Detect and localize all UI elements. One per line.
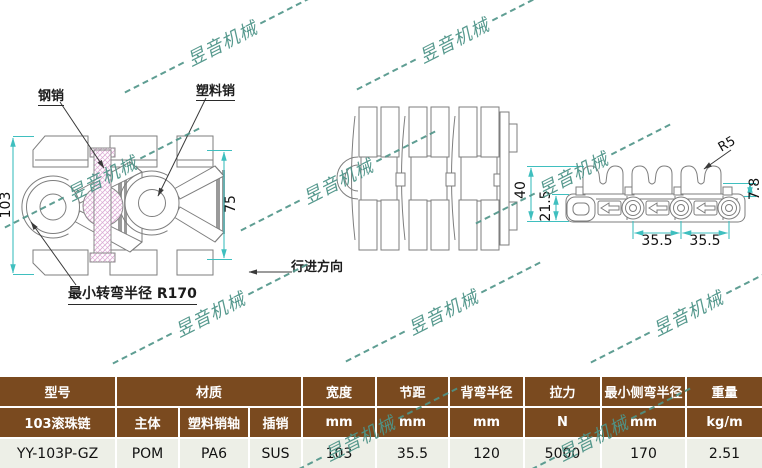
value-weight: 2.51 [687,439,762,468]
subheader-plastic-pin: 塑料销轴 [180,408,248,437]
unit-tension-n: N [525,408,600,437]
col-header-pitch: 节距 [377,377,448,406]
spec-table: 型号 材质 宽度 节距 背弯半径 拉力 最小侧弯半径 重量 103滚珠链 主体 … [0,377,762,468]
travel-direction-label: 行进方向 [291,256,343,275]
unit-pitch-mm: mm [377,408,448,437]
col-header-width: 宽度 [303,377,375,406]
value-body-material: POM [117,439,178,468]
col-header-material: 材质 [117,377,301,406]
dim-40-label: 40 [513,170,529,210]
value-min-side-radius: 170 [602,439,685,468]
dim-75-label: 75 [223,184,239,224]
subheader-series: 103滚珠链 [0,408,115,437]
dim-7-8-label: 7.8 [747,169,762,209]
col-header-backflex-radius: 背弯半径 [450,377,523,406]
value-backflex-radius: 120 [450,439,523,468]
min-turn-radius-label: 最小转弯半径 R170 [68,283,197,305]
plastic-pin-label: 塑料销 [196,80,235,101]
value-pitch: 35.5 [377,439,448,468]
value-plastic-pin-material: PA6 [180,439,248,468]
front-view [13,98,232,285]
top-view [249,107,517,272]
unit-backflex-mm: mm [450,408,523,437]
col-header-weight: 重量 [687,377,762,406]
subheader-body: 主体 [117,408,178,437]
spec-sheet-page: 钢销 塑料销 最小转弯半径 R170 103 75 行进方向 40 21.5 7… [0,0,762,468]
steel-pin-label: 钢销 [38,85,64,106]
dim-35-5-right-label: 35.5 [681,233,729,249]
subheader-insert-pin: 插销 [250,408,301,437]
dim-35-5-left-label: 35.5 [633,233,681,249]
value-insert-pin-material: SUS [250,439,301,468]
side-view [527,150,756,239]
value-tension: 5000 [525,439,600,468]
dim-21-5-label: 21.5 [538,186,554,226]
col-header-min-side-radius: 最小侧弯半径 [602,377,685,406]
value-model: YY-103P-GZ [0,439,115,468]
unit-side-radius-mm: mm [602,408,685,437]
unit-width-mm: mm [303,408,375,437]
dim-103-label: 103 [0,185,14,225]
unit-weight-kgm: kg/m [687,408,762,437]
col-header-model: 型号 [0,377,115,406]
col-header-tension: 拉力 [525,377,600,406]
value-width: 103 [303,439,375,468]
